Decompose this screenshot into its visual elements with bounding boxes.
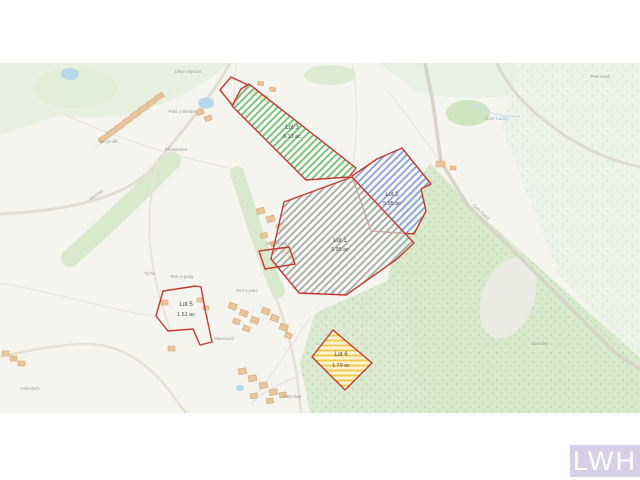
pond bbox=[198, 98, 214, 109]
map-place-label: Rhydonnen bbox=[165, 147, 188, 152]
property-map: Lot 1 9.95 ac Lot 2 5.95 ac Lot 3 6.13 a… bbox=[0, 63, 640, 413]
pond bbox=[236, 385, 244, 391]
pond bbox=[61, 68, 79, 80]
map-place-label: Wern Fawr bbox=[266, 241, 288, 246]
lot-6-area: 1.70 ac bbox=[332, 363, 350, 369]
map-place-label: Cwm-byr bbox=[531, 341, 549, 346]
page: Lot 1 9.95 ac Lot 2 5.95 ac Lot 3 6.13 a… bbox=[0, 0, 640, 480]
lot-2-area: 5.95 ac bbox=[383, 201, 401, 207]
map-place-label: Maescoch bbox=[214, 336, 235, 341]
lot-1-area: 9.95 ac bbox=[331, 247, 349, 253]
lot-3-label: Lot 3 bbox=[285, 125, 299, 131]
map-place-label: Llwyn Mynant bbox=[175, 69, 203, 74]
lot-1-label: Lot 1 bbox=[333, 238, 347, 244]
lot-6-label: Lot 6 bbox=[334, 352, 348, 358]
map-place-label: Pant y Blodyn bbox=[168, 109, 196, 114]
map-water-label: Nant Cadno bbox=[485, 116, 509, 121]
map-place-label: Pen-y-parc bbox=[236, 288, 258, 293]
map-place-label: Ty-hir bbox=[145, 271, 157, 276]
map-place-label: Pwll-coed bbox=[590, 74, 610, 79]
map-place-label: Pen-y-graig bbox=[171, 274, 194, 279]
lwh-logo: LWH bbox=[570, 445, 640, 477]
map-place-label: Garn-fawr bbox=[282, 394, 302, 399]
lwh-logo-text: LWH bbox=[573, 448, 637, 475]
lot-5-area: 1.51 ac bbox=[177, 312, 195, 318]
lot-2-label: Lot 2 bbox=[385, 192, 399, 198]
lot-3-area: 6.13 ac bbox=[283, 134, 301, 140]
map-place-label: Tan-yr-allt bbox=[98, 139, 118, 144]
map-place-label: Felin-fach bbox=[20, 386, 40, 391]
lot-5-label: Lot 5 bbox=[179, 302, 193, 308]
